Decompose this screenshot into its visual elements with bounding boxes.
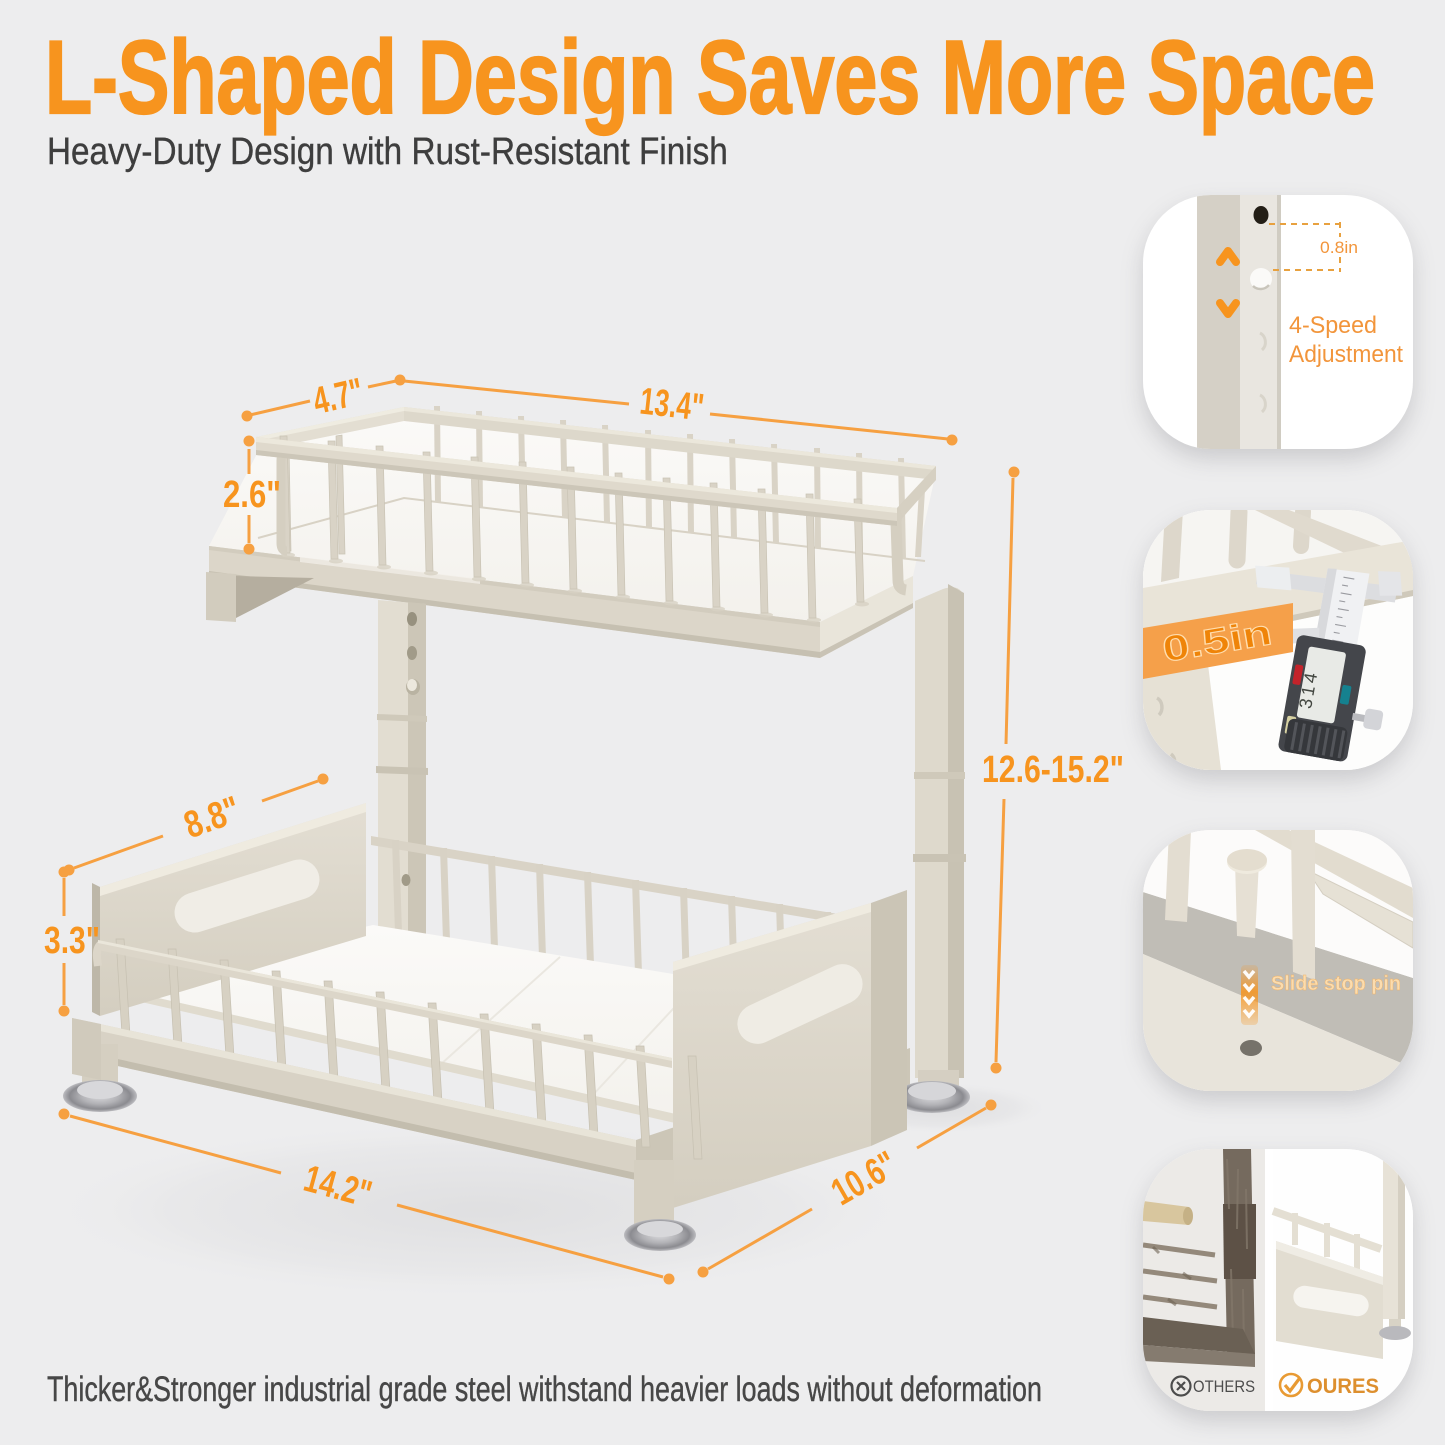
svg-text:OURES: OURES — [1307, 1375, 1379, 1398]
svg-text:8.8": 8.8" — [179, 789, 246, 847]
svg-text:3.3": 3.3" — [44, 920, 100, 962]
svg-text:2.6": 2.6" — [223, 474, 281, 516]
svg-text:4-Speed: 4-Speed — [1289, 312, 1377, 339]
svg-text:Adjustment: Adjustment — [1289, 341, 1403, 368]
svg-text:4.7": 4.7" — [309, 371, 367, 423]
svg-text:Slide stop pin: Slide stop pin — [1271, 972, 1401, 995]
svg-text:12.6-15.2": 12.6-15.2" — [982, 749, 1124, 791]
svg-text:13.4": 13.4" — [638, 381, 706, 430]
svg-text:OTHERS: OTHERS — [1193, 1377, 1255, 1396]
svg-text:0.8in: 0.8in — [1320, 238, 1358, 257]
